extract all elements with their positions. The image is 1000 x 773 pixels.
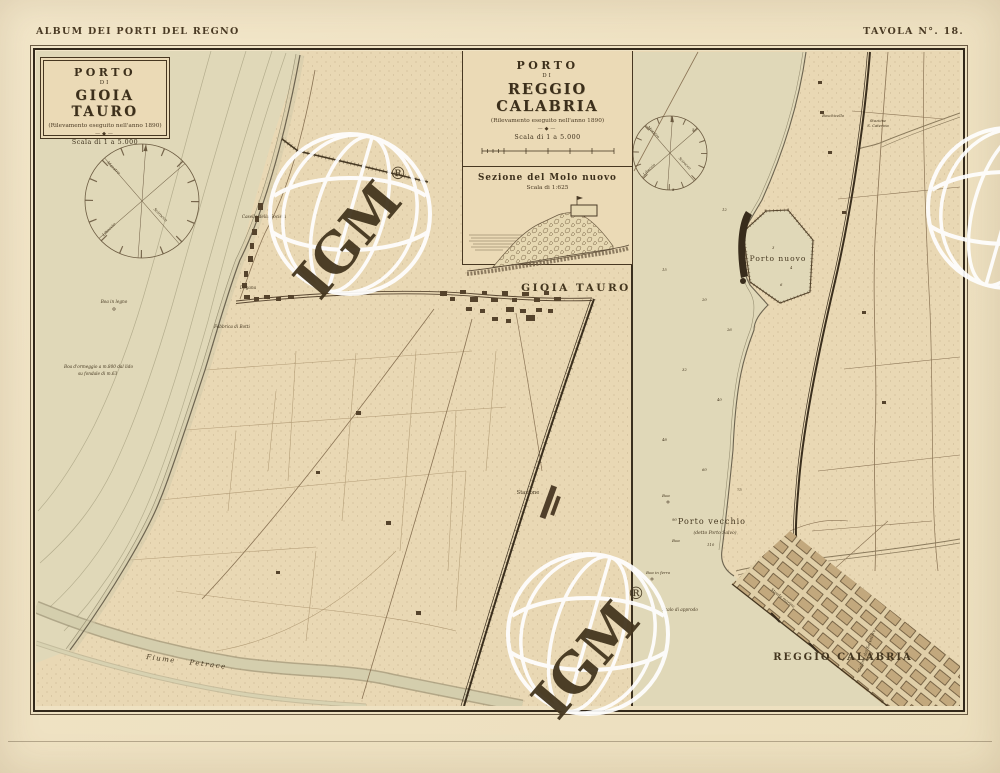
- porto-vecchio-label: Porto vecchio: [678, 517, 746, 526]
- svg-text:75: 75: [737, 487, 742, 492]
- city-label: REGGIO CALABRIA: [773, 652, 913, 663]
- buoy-label-2: Boa: [671, 538, 680, 543]
- buoy-label-1: Boa: [661, 493, 670, 498]
- reggio-scale-note: Scala di 1 a 5.000: [463, 134, 632, 141]
- plate-number: TAVOLA N°. 18.: [863, 26, 964, 37]
- svg-text:20: 20: [701, 297, 707, 302]
- buoy-wood-label: Boa in legno: [100, 299, 128, 304]
- svg-text:26: 26: [726, 327, 732, 332]
- mooring-note-2: su fondale di m.63: [78, 371, 118, 376]
- station-label: Stazione: [517, 490, 540, 496]
- reggio-porto: PORTO: [463, 59, 632, 72]
- station-caterina-2: S. Caterina: [867, 123, 889, 128]
- dogana-label: Dogana: [239, 285, 257, 290]
- gioia-name: GIOIA TAURO: [44, 88, 166, 120]
- gioia-porto: PORTO: [44, 66, 166, 79]
- casello-label: Casello della Società: [242, 214, 287, 219]
- reggio-survey-note: (Rilevamento eseguito nell'anno 1890): [463, 118, 632, 124]
- svg-text:32: 32: [682, 367, 687, 372]
- porto-nuovo-label: Porto nuovo: [750, 254, 807, 263]
- svg-text:40: 40: [716, 397, 722, 402]
- mooring-note-1: Boa d'ormeggio a m.800 dal lido: [63, 364, 133, 369]
- svg-text:60: 60: [702, 467, 707, 472]
- flag-icon: [577, 196, 583, 200]
- scale-bar: [478, 146, 618, 156]
- section-title: Sezione del Molo nuovo: [463, 173, 632, 183]
- mole-section-drawing: [465, 191, 631, 277]
- album-title: ALBUM DEI PORTI DEL REGNO: [36, 26, 240, 37]
- reggio-title-panel: PORTO DI REGGIO CALABRIA (Rilevamento es…: [462, 51, 633, 265]
- villa-label: Boschicello: [821, 113, 845, 118]
- reggio-name: REGGIO CALABRIA: [463, 81, 632, 115]
- svg-text:12: 12: [722, 207, 727, 212]
- mole-parapet: [571, 205, 597, 216]
- atlas-sheet: ALBUM DEI PORTI DEL REGNO TAVOLA N°. 18.: [0, 0, 1000, 773]
- svg-text:90: 90: [672, 517, 677, 522]
- ornament-r: —◆—: [463, 126, 632, 132]
- panel-divider: [463, 166, 632, 167]
- plate-mark: [8, 741, 992, 742]
- porto-vecchio-sub: (detto Porto Salvo): [694, 529, 737, 536]
- scalo-label: Scalo di approdo: [662, 607, 698, 612]
- ornament: —◆—: [44, 131, 166, 137]
- buoy-iron-label: Boa in ferro: [645, 570, 671, 575]
- svg-text:110: 110: [707, 542, 715, 547]
- gioia-survey-note: (Rilevamento eseguito nell'anno 1890): [44, 123, 166, 129]
- reggio-calabria-map: Maestro Libeccio Scirocco 58 1215 2026 3…: [632, 51, 960, 706]
- svg-text:48: 48: [661, 437, 667, 442]
- reggio-di: DI: [463, 73, 632, 79]
- gioia-di: DI: [44, 80, 166, 86]
- gioia-scale-note: Scala di 1 a 5.000: [44, 139, 166, 146]
- map-area: Maestro Libeccio Scirocco GIOIA TAURO St…: [36, 51, 960, 706]
- svg-text:4: 4: [789, 265, 793, 270]
- fabbrica-label: Fabbrica di Botti: [213, 324, 250, 329]
- gioia-title-box: PORTO DI GIOIA TAURO (Rilevamento esegui…: [40, 57, 170, 139]
- svg-text:15: 15: [662, 267, 667, 272]
- town-label: GIOIA TAURO: [521, 282, 631, 294]
